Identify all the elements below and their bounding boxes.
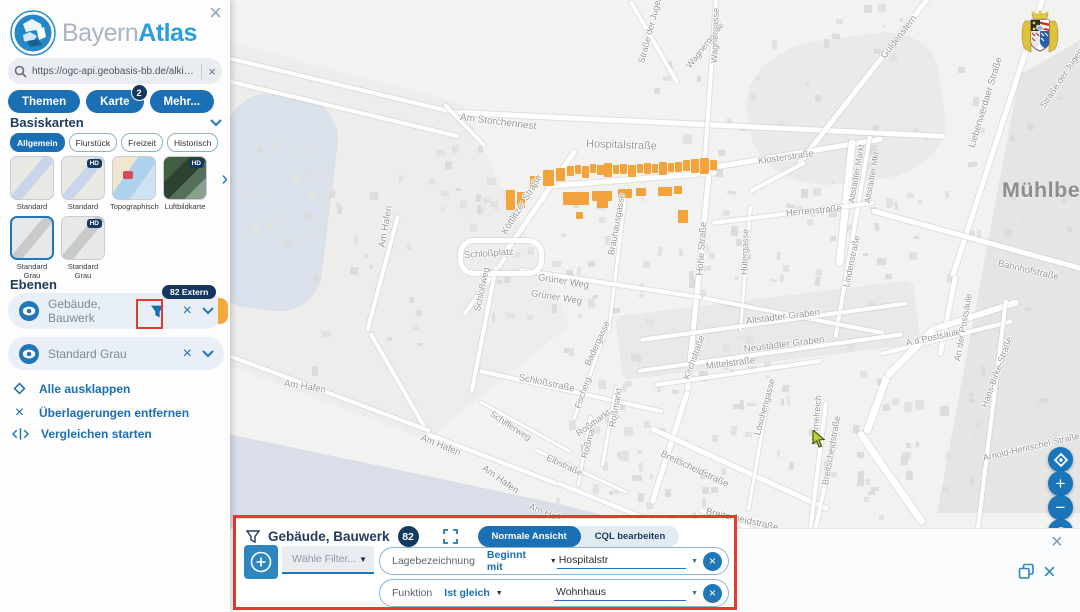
building-block [968, 399, 974, 403]
building-block [308, 171, 313, 175]
building-block [477, 205, 481, 214]
building-block [429, 178, 435, 185]
building-block [576, 267, 581, 276]
street-label: Schloßstraße [518, 372, 576, 395]
building-block [781, 399, 784, 405]
building-block [883, 25, 887, 28]
plus-icon: + [1056, 475, 1066, 492]
building-block [569, 348, 574, 356]
building-block [649, 473, 653, 478]
building-block [801, 189, 808, 198]
close-icon[interactable]: × [1051, 531, 1063, 554]
building-block [1067, 226, 1072, 232]
building-block [313, 274, 320, 284]
building-block [831, 34, 840, 40]
building-block [588, 298, 596, 308]
hd-badge: HD [189, 159, 204, 168]
building-block [459, 201, 467, 210]
layer-filter-icon[interactable] [150, 304, 165, 319]
duplicate-window-icon[interactable] [1018, 563, 1035, 580]
highlighted-building [576, 212, 583, 219]
building-block [312, 366, 319, 376]
building-block [769, 279, 777, 283]
building-block [723, 209, 731, 216]
building-block [895, 204, 899, 210]
building-block [415, 310, 422, 317]
building-block [387, 337, 393, 342]
highlighted-building [700, 158, 709, 174]
building-block [452, 144, 460, 152]
operator-caret-icon: ▼ [496, 590, 503, 597]
highlighted-building [659, 162, 667, 175]
road-segment [650, 426, 829, 511]
building-block [731, 226, 739, 236]
building-block [441, 206, 445, 210]
plus-circle-icon [250, 551, 272, 573]
remove-overlays-link[interactable]: × Überlagerungen entfernen [12, 404, 189, 422]
building-block [637, 493, 644, 502]
building-block [1020, 339, 1026, 344]
highlighted-building [674, 186, 682, 194]
building-block [877, 258, 887, 266]
building-block [587, 261, 595, 268]
building-block [399, 175, 403, 182]
filter-operator-dropdown[interactable]: Beginnt mit [487, 549, 544, 573]
search-bar[interactable]: https://ogc-api.geobasis-bb.de/alkis-ver… [8, 58, 222, 84]
building-block [969, 477, 975, 486]
building-block [864, 5, 872, 13]
street-label: Hospitalstraße [586, 138, 657, 152]
building-block [877, 3, 887, 12]
building-block [914, 236, 919, 240]
building-block [620, 451, 629, 462]
building-block [645, 318, 654, 326]
filter-panel-title: Gebäude, Bauwerk [268, 529, 390, 544]
building-block [657, 386, 662, 391]
filter-field-label: Funktion [392, 587, 432, 599]
building-block [874, 223, 880, 232]
building-block [712, 435, 718, 442]
add-filter-button[interactable] [244, 545, 278, 579]
building-block [1010, 134, 1016, 141]
building-block [1027, 123, 1034, 130]
building-block [665, 489, 672, 497]
building-block [672, 389, 679, 394]
building-block [807, 219, 814, 226]
clear-search-icon[interactable]: × [201, 64, 216, 79]
cql-edit-tab[interactable]: CQL bearbeiten [581, 526, 680, 547]
highlighted-building [636, 188, 646, 196]
highlighted-building [678, 210, 688, 223]
extern-count-badge: 82 Extern [162, 285, 216, 299]
remove-layer-icon[interactable]: × [183, 302, 192, 320]
building-block [824, 39, 829, 48]
tab-mehr[interactable]: Mehr... [150, 90, 214, 113]
layer-row-standard-grau[interactable]: Standard Grau × [8, 337, 224, 370]
highlighted-building [710, 160, 717, 170]
expand-all-link[interactable]: Alle ausklappen [12, 381, 130, 396]
building-block [598, 380, 606, 389]
building-block [304, 211, 313, 218]
tab-karte[interactable]: Karte 2 [86, 90, 143, 113]
building-block [551, 304, 556, 313]
building-block [859, 370, 867, 377]
building-block [781, 385, 789, 393]
building-block [637, 450, 642, 455]
building-block [829, 235, 836, 241]
zoom-in-button[interactable]: + [1048, 471, 1073, 496]
mouse-cursor [812, 430, 828, 448]
building-block [492, 313, 495, 322]
building-block [815, 277, 821, 287]
building-block [918, 200, 922, 204]
building-block [639, 294, 644, 298]
basemap-standard-hd[interactable]: HD Standard [59, 156, 107, 211]
building-block [878, 515, 883, 521]
building-block [678, 248, 683, 256]
building-block [776, 252, 780, 260]
building-block [783, 265, 790, 273]
close-sidebar-icon[interactable]: × [209, 0, 222, 26]
building-block [786, 396, 790, 406]
app-title: BayernAtlas [62, 19, 197, 48]
building-block [412, 325, 418, 330]
building-block [444, 160, 451, 168]
building-block [329, 190, 335, 198]
building-block [469, 224, 477, 233]
building-block [916, 442, 920, 448]
building-block [631, 353, 640, 361]
building-block [291, 175, 299, 185]
layer-visibility-icon[interactable] [18, 300, 40, 322]
building-block [972, 435, 977, 443]
expand-all-icon [12, 381, 27, 396]
building-block [526, 315, 532, 320]
building-block [977, 230, 981, 238]
operator-caret-icon: ▼ [550, 558, 557, 565]
choose-filter-dropdown[interactable]: Wähle Filter... ▼ [282, 546, 374, 574]
highlighted-building [567, 166, 574, 176]
highlighted-building [575, 165, 581, 174]
building-block [805, 82, 809, 86]
bayernatlas-logo-icon [10, 10, 56, 56]
building-block [749, 93, 756, 102]
building-block [886, 197, 894, 208]
layer-visibility-icon[interactable] [18, 343, 40, 365]
filter-value-input[interactable]: Wohnhaus [554, 586, 686, 601]
building-block [504, 277, 510, 283]
building-block [654, 88, 660, 95]
basiskarten-header: Basiskarten [10, 115, 84, 130]
highlighted-building [590, 164, 596, 173]
street-label: Hütergasse [739, 229, 751, 275]
building-block [641, 197, 645, 201]
street-label: Löschengasse [752, 378, 777, 437]
building-block [251, 224, 259, 234]
highlighted-building [582, 166, 589, 178]
highlighted-building [597, 165, 604, 175]
search-icon [14, 65, 27, 78]
building-block [552, 260, 562, 267]
city-label: Mühlberg [1002, 178, 1080, 203]
building-block [755, 76, 759, 80]
building-block [958, 67, 965, 73]
building-block [772, 40, 778, 50]
building-block [909, 252, 918, 260]
basemap-standard-grau-selected[interactable]: Standard Grau [8, 216, 56, 280]
dropdown-caret-icon: ▼ [359, 555, 367, 564]
building-block [907, 193, 914, 198]
remove-layer-icon[interactable]: × [183, 345, 192, 363]
building-block [901, 455, 909, 465]
building-block [857, 452, 864, 459]
street-label: Badergasse [582, 319, 611, 367]
building-block [315, 231, 321, 235]
building-block [856, 479, 863, 486]
building-block [441, 191, 450, 196]
building-block [337, 206, 343, 214]
building-block [718, 150, 725, 156]
category-flurstueck[interactable]: Flurstück [69, 133, 117, 152]
view-toggle: Normale Ansicht CQL bearbeiten [478, 526, 680, 547]
building-block [417, 342, 423, 346]
highlighted-building [668, 163, 674, 172]
building-block [847, 344, 856, 353]
building-block [486, 178, 495, 185]
bottom-right-close: × [1051, 531, 1063, 554]
building-block [722, 343, 729, 351]
building-block [735, 276, 740, 280]
building-block [409, 297, 414, 303]
building-block [943, 487, 949, 492]
layer-color-indicator [218, 298, 228, 324]
building-block [642, 261, 650, 269]
highlighted-building [658, 187, 672, 196]
basemap-topographisch[interactable]: Topographisch [110, 156, 158, 211]
building-block [644, 421, 650, 428]
search-input[interactable]: https://ogc-api.geobasis-bb.de/alkis-ver… [32, 66, 197, 77]
building-block [747, 403, 756, 406]
highlighted-building [644, 163, 651, 174]
highlighted-building [637, 164, 643, 173]
remove-overlays-icon: × [12, 404, 27, 422]
building-block [435, 150, 444, 157]
building-block [891, 398, 898, 406]
building-block [981, 366, 986, 376]
building-block [456, 188, 461, 192]
building-block [815, 268, 822, 276]
compare-icon [12, 428, 29, 440]
building-block [730, 425, 737, 435]
street-label: Wagnergasse [709, 8, 721, 64]
building-block [866, 479, 870, 486]
street-label: Brauhausgasse [606, 193, 627, 256]
result-count-badge: 82 [398, 526, 419, 547]
street-label: Breitscheidstraße [659, 449, 731, 490]
building-block [1039, 398, 1048, 403]
building-block [657, 247, 662, 256]
building-block [282, 215, 288, 220]
building-block [779, 274, 784, 282]
building-block [868, 490, 875, 494]
building-block [882, 404, 890, 412]
building-block [272, 141, 278, 148]
highlighted-building [613, 165, 619, 174]
building-block [914, 400, 924, 410]
remove-filter-button[interactable]: × [703, 552, 722, 571]
remove-filter-button[interactable]: × [703, 584, 722, 603]
filter-funnel-icon [246, 530, 260, 543]
building-block [265, 222, 274, 228]
category-historisch[interactable]: Historisch [167, 133, 218, 152]
highlighted-building [683, 160, 690, 171]
expand-panel-icon[interactable] [443, 529, 458, 544]
building-block [257, 146, 264, 153]
building-block [737, 335, 745, 339]
hd-badge: HD [87, 219, 102, 228]
minus-icon: − [1056, 499, 1066, 516]
building-block [336, 203, 341, 207]
building-block [906, 443, 911, 449]
building-block [1059, 97, 1063, 101]
building-block [980, 417, 984, 424]
building-block [697, 76, 701, 83]
building-block [369, 264, 373, 268]
building-block [371, 196, 375, 200]
bavaria-coat-of-arms [1018, 8, 1062, 55]
building-block [740, 400, 744, 410]
building-block [957, 454, 964, 458]
building-block [941, 406, 946, 412]
highlighted-building [620, 164, 627, 174]
building-block [593, 484, 600, 494]
sidebar-panel: × BayernAtlas https://ogc-api.geobasis-b… [0, 0, 230, 612]
building-block [689, 279, 695, 288]
filter-field-label: Lagebezeichnung [392, 555, 475, 567]
building-block [815, 94, 821, 101]
building-block [506, 312, 515, 318]
choose-filter-placeholder: Wähle Filter... [292, 553, 359, 565]
building-block [945, 191, 949, 198]
building-block [663, 76, 671, 81]
geolocate-button[interactable] [1048, 447, 1073, 472]
filter-row-funktion: Funktion Ist gleich ▼ Wohnhaus ▼ × [379, 579, 729, 607]
value-caret-icon: ▼ [691, 558, 698, 565]
building-block [578, 314, 582, 318]
building-block [632, 474, 640, 481]
normal-view-tab[interactable]: Normale Ansicht [478, 526, 581, 547]
building-block [349, 266, 358, 275]
building-block [831, 180, 835, 184]
karte-count-badge: 2 [131, 84, 148, 101]
building-block [556, 498, 560, 508]
zoom-out-button[interactable]: − [1048, 495, 1073, 520]
highlighted-building [652, 164, 658, 173]
building-block [727, 191, 736, 195]
building-block [702, 487, 709, 495]
ebenen-header: Ebenen [10, 277, 57, 292]
basemap-luftbildkarte[interactable]: HD Luftbildkarte [161, 156, 209, 211]
building-block [906, 471, 914, 481]
highlighted-building [604, 163, 612, 177]
filter-row-lagebezeichnung: Lagebezeichnung Beginnt mit ▼ Hospitalst… [379, 547, 729, 575]
building-block [309, 191, 318, 200]
expand-layer-icon[interactable] [202, 350, 214, 358]
building-block [721, 468, 727, 475]
building-block [968, 161, 977, 167]
basemap-standard-grau-hd[interactable]: HD Standard Grau [59, 216, 107, 280]
building-block [285, 237, 291, 246]
tab-themen[interactable]: Themen [8, 90, 80, 113]
app-logo[interactable]: BayernAtlas [10, 10, 197, 56]
highlighted-building [628, 165, 636, 177]
building-block [864, 497, 869, 502]
building-block [709, 253, 715, 259]
highlighted-building [675, 162, 682, 172]
expand-layer-icon[interactable] [202, 307, 214, 315]
highlighted-building [556, 168, 565, 181]
road-segment [479, 400, 572, 454]
building-block [483, 198, 490, 202]
building-block [884, 274, 891, 279]
basemap-standard[interactable]: Standard [8, 156, 56, 211]
building-block [836, 19, 843, 25]
filter-value-input[interactable]: Hospitalstr [557, 554, 686, 569]
building-block [1004, 230, 1013, 238]
next-basemaps-icon[interactable]: › [221, 168, 228, 191]
building-block [638, 463, 643, 472]
category-allgemein[interactable]: Allgemein [10, 133, 65, 152]
highlighted-building [592, 191, 612, 201]
building-block [599, 217, 606, 223]
category-freizeit[interactable]: Freizeit [121, 133, 163, 152]
building-block [813, 188, 822, 197]
filter-operator-dropdown[interactable]: Ist gleich [444, 587, 490, 599]
building-block [863, 252, 868, 256]
building-block [777, 449, 781, 457]
close-panel-icon[interactable]: × [1043, 563, 1056, 580]
hd-badge: HD [87, 159, 102, 168]
start-compare-link[interactable]: Vergleichen starten [12, 427, 152, 441]
filter-panel: Gebäude, Bauwerk 82 Normale Ansicht CQL … [236, 519, 734, 607]
building-block [788, 461, 794, 470]
value-caret-icon: ▼ [691, 590, 698, 597]
highlighted-building [691, 159, 699, 173]
building-block [624, 426, 633, 436]
highlighted-building [563, 192, 589, 205]
building-block [702, 498, 706, 507]
collapse-basiskarten-icon[interactable] [210, 119, 222, 127]
highlighted-building [597, 201, 608, 208]
building-block [711, 486, 719, 493]
building-block [903, 401, 913, 412]
building-block [561, 233, 566, 237]
building-block [682, 134, 692, 144]
